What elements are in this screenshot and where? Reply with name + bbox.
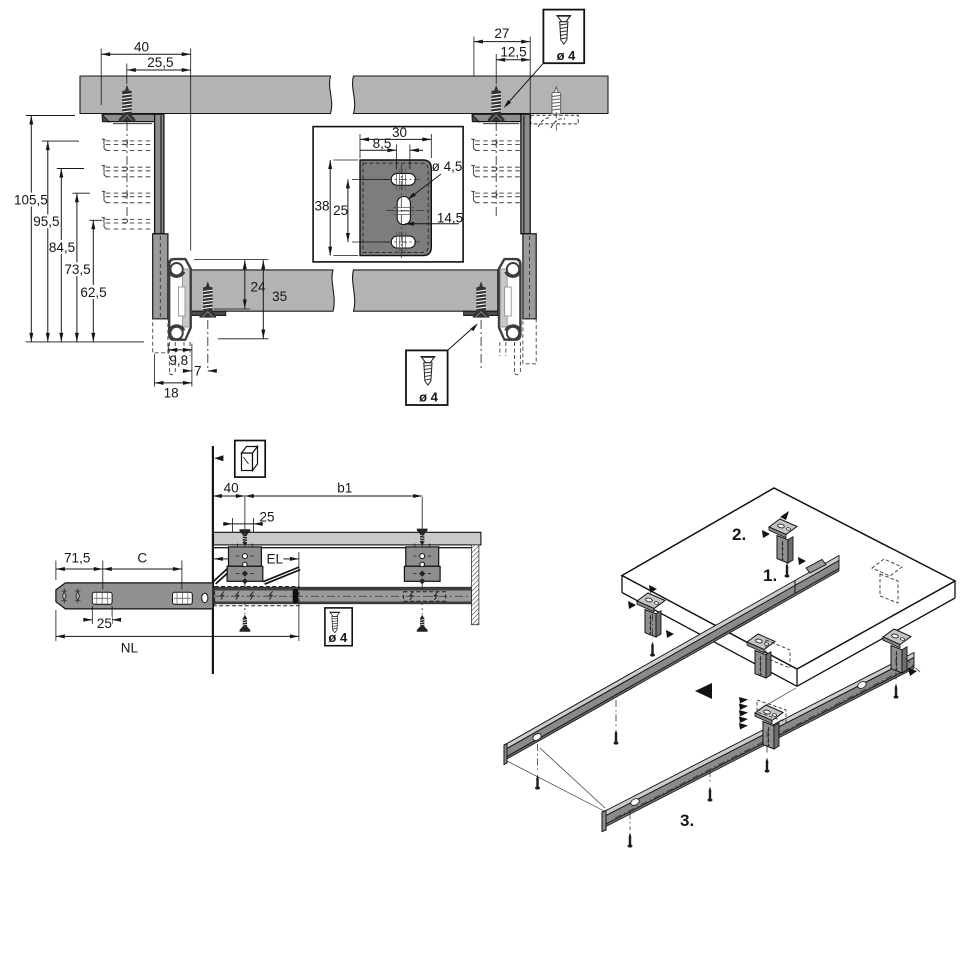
svg-text:25,5: 25,5 [147, 55, 173, 70]
svg-text:b1: b1 [337, 481, 352, 496]
svg-text:25: 25 [97, 616, 112, 631]
svg-text:8,5: 8,5 [373, 136, 392, 151]
svg-text:7: 7 [194, 363, 202, 378]
svg-text:95,5: 95,5 [33, 214, 59, 229]
svg-text:62,5: 62,5 [80, 285, 106, 300]
svg-text:EL: EL [267, 551, 284, 566]
svg-text:18: 18 [164, 385, 179, 400]
svg-text:14,5: 14,5 [437, 210, 463, 225]
svg-text:ø 4: ø 4 [419, 390, 439, 405]
svg-text:105,5: 105,5 [14, 192, 48, 207]
svg-text:ø 4: ø 4 [557, 48, 577, 63]
svg-text:3.: 3. [680, 811, 694, 830]
svg-text:84,5: 84,5 [49, 240, 75, 255]
svg-text:40: 40 [134, 39, 149, 54]
svg-text:73,5: 73,5 [64, 262, 90, 277]
svg-text:71,5: 71,5 [64, 551, 90, 566]
svg-text:1.: 1. [763, 566, 777, 585]
svg-text:NL: NL [121, 640, 139, 655]
svg-text:30: 30 [392, 125, 407, 140]
svg-text:25: 25 [259, 510, 274, 525]
svg-text:ø 4: ø 4 [328, 630, 348, 645]
svg-text:C: C [137, 551, 147, 566]
svg-text:40: 40 [224, 481, 239, 496]
svg-text:27: 27 [494, 26, 509, 41]
svg-text:35: 35 [272, 289, 287, 304]
svg-text:25: 25 [333, 203, 348, 218]
svg-text:38: 38 [314, 198, 329, 213]
svg-text:12,5: 12,5 [500, 44, 526, 59]
svg-text:ø 4,5: ø 4,5 [432, 159, 463, 174]
svg-text:9,8: 9,8 [169, 353, 188, 368]
svg-text:2.: 2. [732, 525, 746, 544]
